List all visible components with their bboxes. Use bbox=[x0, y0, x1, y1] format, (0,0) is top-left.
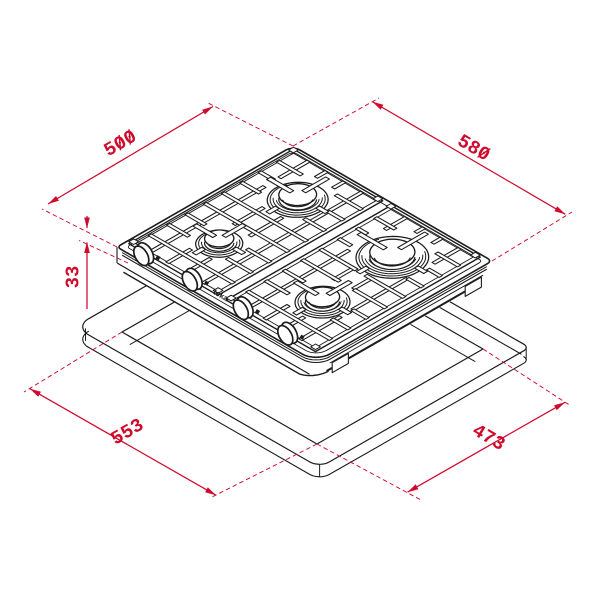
svg-text:33: 33 bbox=[63, 266, 85, 289]
